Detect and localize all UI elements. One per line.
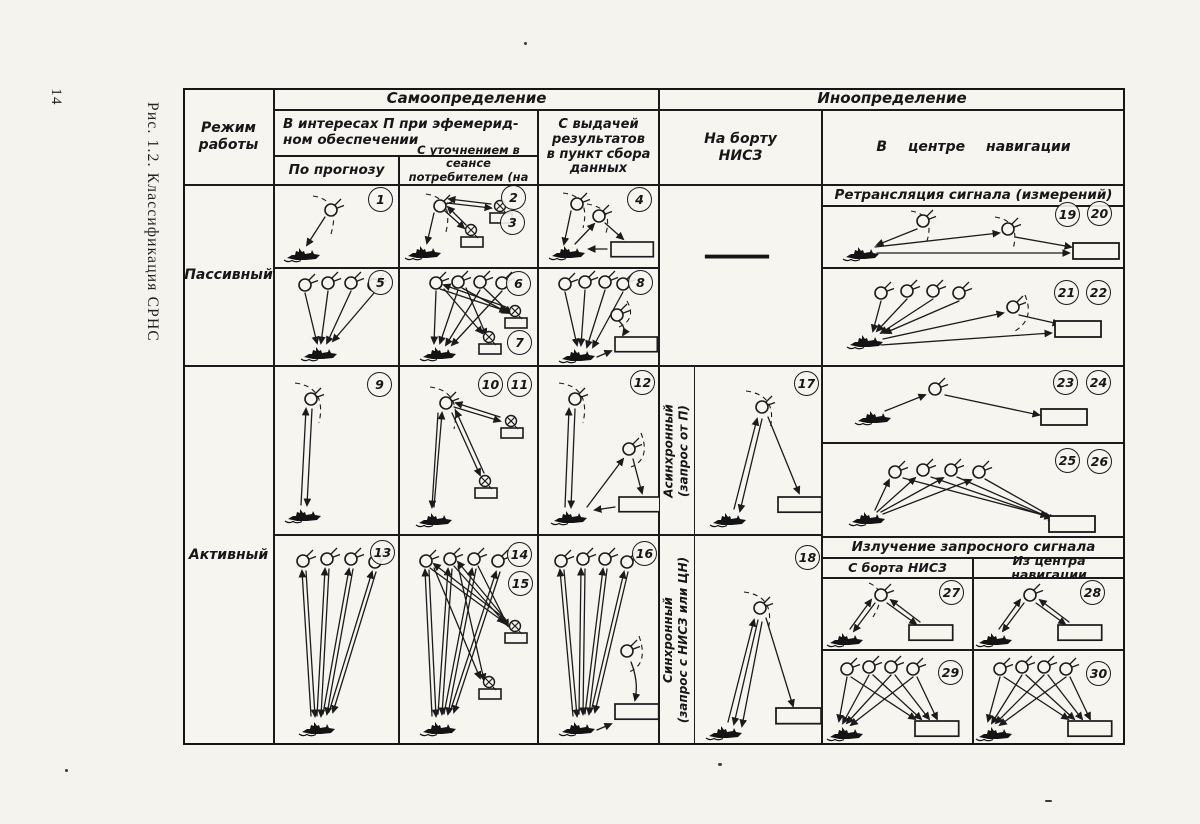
satellite-icon [885,656,904,673]
diagram-number-badge-30: 30 [1086,661,1111,686]
ship-icon [976,727,1012,741]
async-line2: (запрос от П) [676,405,690,497]
collection-box-icon [1055,321,1101,337]
header-self-label: Самоопределение [387,90,547,107]
ship-icon [301,347,337,361]
ship-icon [843,247,879,261]
diagram-number-badge-20: 20 [1087,201,1112,226]
header-from-board-label: С борта НИСЗ [848,561,947,575]
ship-icon [551,511,587,525]
ship-icon [710,513,746,527]
header-forecast-label: По прогнозу [289,163,385,179]
row-passive-label: Пассивный [184,267,273,283]
diagram-number-badge-21: 21 [1054,280,1079,305]
cell-onboard-passive-none: — [659,185,822,366]
header-nav-center-label: В центре навигации [876,139,1070,155]
collection-box-icon [611,242,653,257]
ship-icon [559,722,595,736]
ground-station-icon [501,416,523,439]
satellite-icon [1038,656,1057,673]
ship-icon [849,512,885,526]
ship-icon [827,633,863,647]
header-interests-line2: ном обеспечении [283,132,418,148]
header-from-center: Из центра навигации [973,558,1125,578]
diagram-number-badge-19: 19 [1055,202,1080,227]
diagram-23-24 [823,367,1126,444]
row-label-passive: Пассивный [183,185,274,366]
ground-station-icon [505,621,527,644]
diagram-13 [275,536,400,746]
satellite-icon [875,282,894,299]
satellite-icon [555,550,574,567]
header-forecast: По прогнозу [274,156,399,185]
cell-diagram-13 [274,535,399,745]
diagram-number-badge-27: 27 [939,580,964,605]
diagram-16 [539,536,660,746]
satellite-icon [579,271,598,288]
diagram-number-badge-13: 13 [370,540,395,565]
satellite-icon [1016,656,1035,673]
diagram-number-badge-4: 4 [627,187,652,212]
header-other-label: Иноопределение [817,90,966,107]
diagram-number-badge-1: 1 [368,187,393,212]
satellite-icon [875,584,894,601]
scan-speck [65,769,68,772]
diagram-number-badge-7: 7 [507,330,532,355]
satellite-icon [452,271,471,288]
satellite-icon [1060,658,1079,675]
page-number: 14 [48,82,64,112]
header-other-determination: Иноопределение [659,88,1125,110]
satellite-icon [599,271,618,288]
collection-box-icon [909,625,953,640]
ship-icon [549,246,585,260]
header-relay-label: Ретрансляция сигнала (измерений) [835,188,1113,204]
satellite-icon [440,392,459,409]
ground-station-icon [479,332,501,355]
diagram-number-badge-10: 10 [478,372,503,397]
satellite-icon [945,459,964,476]
ship-icon [847,335,883,349]
header-interests-line1: В интересах П при эфемерид- [283,116,519,132]
diagram-number-badge-11: 11 [507,372,532,397]
diagram-number-badge-12: 12 [630,370,655,395]
scanned-book-page: 14 Рис. 1.2. Классификация СРНС Режим ра… [0,0,1200,824]
satellite-icon [322,272,341,289]
satellite-icon [345,272,364,289]
header-onboard-nisz: На борту НИСЗ [659,110,822,185]
cell-diagram-23-24 [822,366,1125,443]
satellite-icon [889,461,908,478]
satellite-icon [569,388,588,405]
header-results-line3: в пункт сбора [547,147,651,162]
ship-icon [416,513,452,527]
header-refinement: С уточнением в сеансе потребителем (на Н… [399,156,538,185]
row-label-active: Активный [183,366,274,745]
diagram-number-badge-18: 18 [795,545,820,570]
satellite-icon [474,271,493,288]
diagram-number-badge-22: 22 [1086,280,1111,305]
ship-icon [299,722,335,736]
mode-label-synchronous: Синхронный (запрос с НИСЗ или ЦН) [659,535,693,745]
satellite-icon [299,274,318,291]
cell-diagram-21-22 [822,268,1125,366]
ship-icon [559,349,595,363]
diagram-number-badge-29: 29 [938,660,963,685]
diagram-14-15 [400,536,539,746]
satellite-icon [929,378,948,395]
diagram-number-badge-14: 14 [507,542,532,567]
header-regime: Режим работы [183,88,274,185]
diagram-25-26 [823,444,1126,538]
diagram-number-badge-15: 15 [508,571,533,596]
diagram-number-badge-23: 23 [1053,370,1078,395]
header-onboard-line1: На борту [704,131,777,147]
sync-line2: (запрос с НИСЗ или ЦН) [676,557,690,723]
satellite-icon [345,548,364,565]
satellite-icon [559,273,578,290]
satellite-icon [907,658,926,675]
satellite-icon [927,280,946,297]
ship-icon [976,633,1012,647]
diagram-number-badge-25: 25 [1055,448,1080,473]
satellite-icon [863,656,882,673]
satellite-icon [901,280,920,297]
collection-box-icon [776,708,821,724]
satellite-icon [611,304,630,321]
satellite-icon [994,658,1013,675]
collection-box-icon [1068,721,1112,736]
satellite-icon [841,658,860,675]
diagram-number-badge-5: 5 [368,270,393,295]
satellite-icon [1024,584,1043,601]
ship-icon [420,722,456,736]
ship-icon [284,248,320,262]
header-self-determination: Самоопределение [274,88,659,110]
collection-box-icon [1049,516,1095,532]
satellite-icon [1007,296,1026,313]
satellite-icon [297,550,316,567]
diagram-number-badge-28: 28 [1080,580,1105,605]
scan-speck [718,763,722,766]
satellite-icon [321,548,340,565]
collection-box-icon [1058,625,1102,640]
satellite-icon [325,199,344,216]
figure-caption: Рис. 1.2. Классификация СРНС [142,86,162,358]
mode-label-asynchronous: Асинхронный (запрос от П) [659,366,693,535]
diagram-number-badge-2: 2 [501,185,526,210]
collection-box-icon [915,721,959,736]
header-results-line4: данных [570,161,627,176]
diagram-number-badge-17: 17 [794,371,819,396]
row-active-label: Активный [189,547,268,563]
collection-box-icon [1073,243,1119,259]
diagram-number-badge-6: 6 [506,271,531,296]
satellite-icon [973,461,992,478]
collection-box-icon [615,704,659,719]
diagram-number-badge-26: 26 [1087,449,1112,474]
diagram-number-badge-24: 24 [1086,370,1111,395]
collection-box-icon [1041,409,1087,425]
header-regime-line2: работы [199,137,259,153]
header-results-delivery: С выдачей результатов в пункт сбора данн… [538,110,659,185]
satellite-icon [621,640,640,657]
ship-icon [405,246,441,260]
ground-station-icon [475,476,497,499]
header-results-line2: результатов [552,132,645,147]
satellite-icon [420,550,439,567]
satellite-icon [599,548,618,565]
satellite-icon [917,459,936,476]
scan-speck [524,42,527,45]
ship-icon [706,726,742,740]
satellite-icon [623,438,642,455]
satellite-icon [305,388,324,405]
satellite-icon [917,210,936,227]
diagram-21-22 [823,269,1126,367]
header-results-line1: С выдачей [558,117,638,132]
sync-line1: Синхронный [661,597,675,683]
collection-box-icon [778,497,822,512]
diagram-19-20 [823,207,1126,269]
ground-station-icon [505,306,527,329]
header-from-board: С борта НИСЗ [822,558,973,578]
collection-box-icon [619,497,660,512]
satellite-icon [593,205,612,222]
satellite-icon [468,548,487,565]
scan-speck [1045,800,1052,802]
ground-station-icon [479,677,501,700]
ship-icon [827,727,863,741]
satellite-icon [444,548,463,565]
header-regime-line1: Режим [201,120,256,136]
satellite-icon [577,548,596,565]
header-relay: Ретрансляция сигнала (измерений) [822,185,1125,206]
async-line1: Асинхронный [661,404,675,498]
ship-icon [855,411,891,425]
diagram-number-badge-3: 3 [500,210,525,235]
collection-box-icon [615,337,657,352]
ship-icon [420,347,456,361]
diagram-number-badge-16: 16 [632,541,657,566]
none-dash: — [701,238,773,273]
header-refinement-line1: С уточнением в сеансе [417,143,520,170]
diagram-number-badge-8: 8 [628,270,653,295]
header-onboard-line2: НИСЗ [719,148,763,164]
ship-icon [285,509,321,523]
cell-diagram-16 [538,535,659,745]
satellite-icon [953,282,972,299]
diagram-number-badge-9: 9 [367,372,392,397]
header-nav-center: В центре навигации [822,110,1125,185]
